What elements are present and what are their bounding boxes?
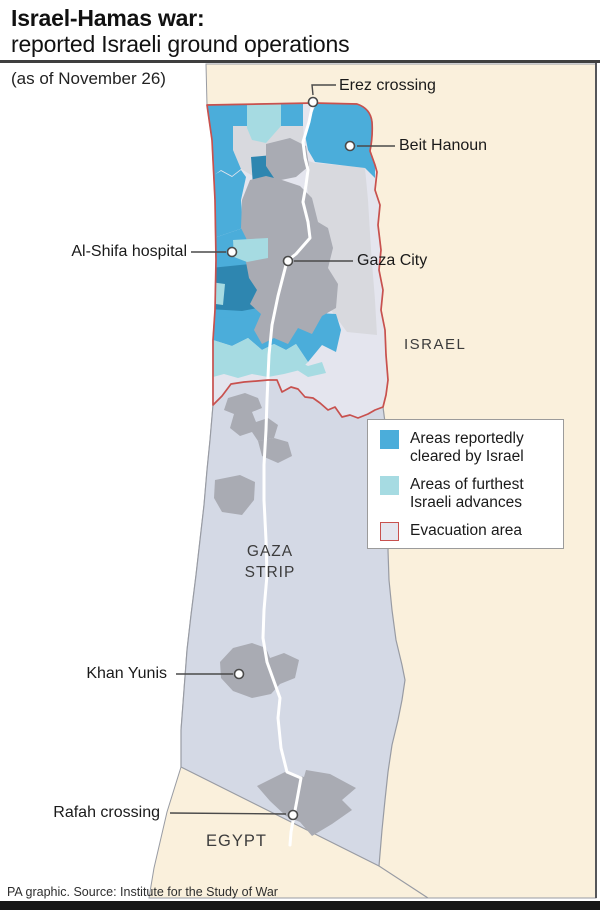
rafah-leader-line xyxy=(170,813,286,814)
label-erez-crossing: Erez crossing xyxy=(339,77,436,95)
legend-advances-line2: Israeli advances xyxy=(410,494,524,512)
label-beit-hanoun: Beit Hanoun xyxy=(399,137,487,155)
legend-item-advances-label: Areas of furthest Israeli advances xyxy=(410,476,524,511)
label-gaza-strip-line2: STRIP xyxy=(245,564,296,581)
label-khan-yunis: Khan Yunis xyxy=(86,665,167,683)
label-al-shifa-hospital: Al-Shifa hospital xyxy=(71,243,187,261)
legend-item-evacuation-label: Evacuation area xyxy=(410,522,522,541)
date-note: (as of November 26) xyxy=(11,69,166,89)
advances-swatch xyxy=(380,476,399,495)
label-gaza-strip-line1: GAZA xyxy=(247,543,293,560)
rafah-marker xyxy=(289,811,298,820)
gaza-city-marker xyxy=(284,257,293,266)
label-rafah-crossing: Rafah crossing xyxy=(53,804,160,822)
legend-cleared-line1: Areas reportedly xyxy=(410,430,524,448)
source-credit: PA graphic. Source: Institute for the St… xyxy=(7,885,278,899)
khan-yunis-marker xyxy=(235,670,244,679)
label-gaza-strip: GAZA STRIP xyxy=(224,541,316,583)
beit-hanoun-marker xyxy=(346,142,355,151)
erez-marker xyxy=(309,98,318,107)
label-egypt: EGYPT xyxy=(206,832,267,851)
pa-infographic: Israel-Hamas war: reported Israeli groun… xyxy=(0,0,600,910)
legend-advances-line1: Areas of furthest xyxy=(410,476,524,494)
map-legend: Areas reportedly cleared by Israel Areas… xyxy=(367,419,564,549)
bottom-bar xyxy=(0,901,600,910)
legend-evacuation-line1: Evacuation area xyxy=(410,522,522,540)
legend-cleared-line2: cleared by Israel xyxy=(410,448,524,466)
cleared-swatch xyxy=(380,430,399,449)
label-israel: ISRAEL xyxy=(404,336,466,353)
al-shifa-marker xyxy=(228,248,237,257)
legend-item-cleared: Areas reportedly cleared by Israel xyxy=(380,430,553,465)
legend-item-cleared-label: Areas reportedly cleared by Israel xyxy=(410,430,524,465)
label-gaza-city: Gaza City xyxy=(357,252,427,270)
legend-item-evacuation: Evacuation area xyxy=(380,522,553,541)
legend-item-advances: Areas of furthest Israeli advances xyxy=(380,476,553,511)
evacuation-swatch xyxy=(380,522,399,541)
